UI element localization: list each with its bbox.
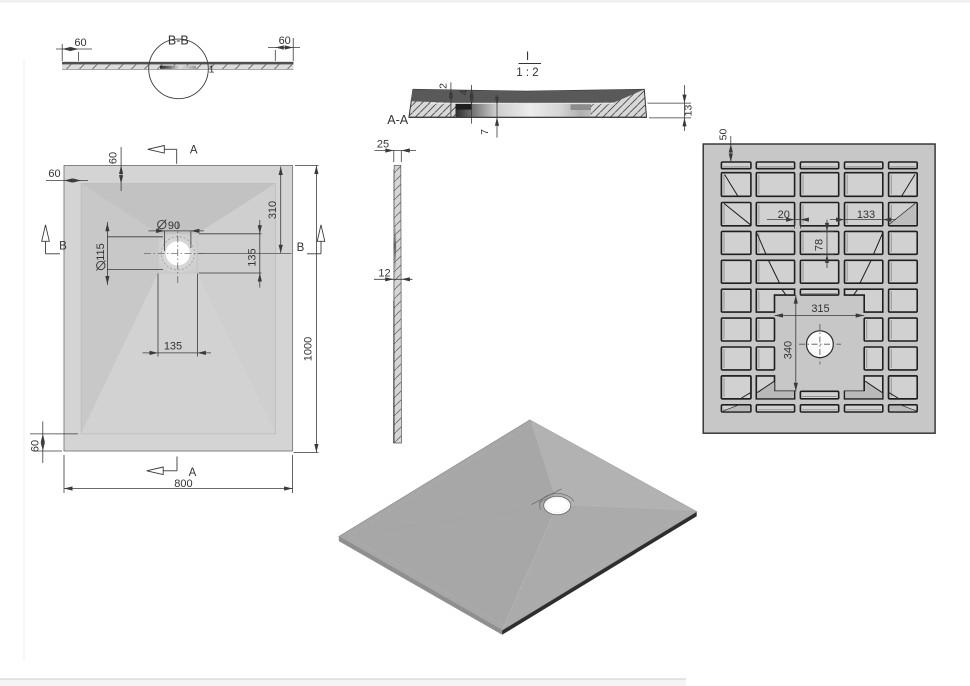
svg-text:A: A <box>190 145 198 157</box>
svg-text:A-A: A-A <box>387 113 409 127</box>
svg-text:78: 78 <box>814 239 826 251</box>
svg-text:B: B <box>59 241 67 253</box>
svg-text:7: 7 <box>479 129 491 135</box>
svg-text:315: 315 <box>811 303 829 315</box>
svg-text:4: 4 <box>458 89 470 95</box>
svg-text:115: 115 <box>95 243 107 261</box>
svg-text:1 : 2: 1 : 2 <box>516 67 538 79</box>
svg-text:135: 135 <box>164 341 182 353</box>
svg-text:60: 60 <box>108 152 120 164</box>
svg-text:1: 1 <box>209 64 215 76</box>
svg-text:25: 25 <box>377 139 389 151</box>
svg-text:1000: 1000 <box>303 337 315 361</box>
svg-text:133: 133 <box>857 209 875 221</box>
svg-text:B: B <box>297 242 305 254</box>
svg-text:50: 50 <box>717 129 729 141</box>
svg-text:60: 60 <box>74 37 86 49</box>
svg-text:135: 135 <box>246 248 258 266</box>
svg-text:90: 90 <box>168 220 180 232</box>
svg-text:800: 800 <box>174 478 192 490</box>
svg-text:60: 60 <box>48 168 60 180</box>
svg-text:310: 310 <box>267 201 279 219</box>
svg-text:20: 20 <box>778 209 790 221</box>
svg-text:340: 340 <box>782 341 794 359</box>
svg-text:13: 13 <box>683 105 695 117</box>
svg-text:60: 60 <box>29 440 41 452</box>
svg-text:I: I <box>526 49 529 63</box>
svg-text:2: 2 <box>437 83 449 89</box>
svg-text:12: 12 <box>378 267 390 279</box>
svg-text:60: 60 <box>279 35 291 47</box>
svg-text:B-B: B-B <box>168 34 189 48</box>
